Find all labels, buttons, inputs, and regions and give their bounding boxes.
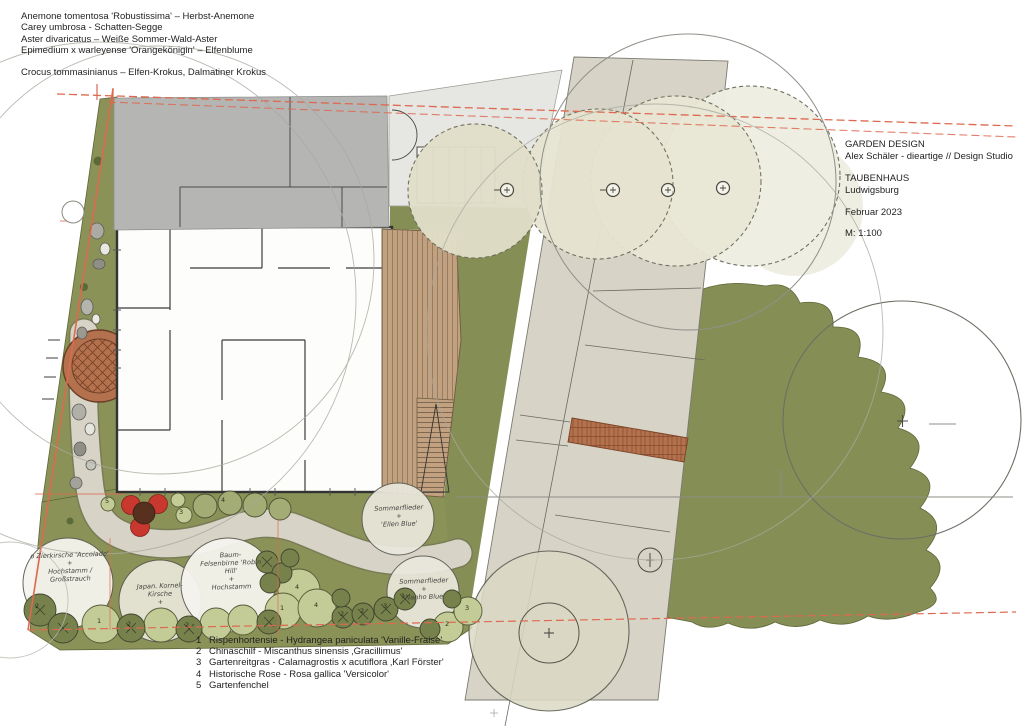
legend-item: 1Rispenhortensie - Hydrangea paniculata …	[196, 635, 444, 646]
house-floorplan	[113, 227, 396, 496]
studio-name: GARDEN DESIGN	[845, 139, 1013, 151]
plan-scale: M: 1:100	[845, 228, 1013, 240]
legend-num: 3	[196, 657, 209, 668]
plant-number-marker: 2	[185, 621, 189, 629]
dimension-ticks	[42, 340, 60, 399]
note-line-crocus: Crocus tommasinianus – Elfen-Krokus, Dal…	[21, 67, 266, 78]
legend-text: Chinaschilf - Miscanthus sinensis ‚Graci…	[209, 646, 402, 657]
lawn-right-hedge	[666, 283, 940, 628]
plant-number-marker: 4	[295, 583, 299, 591]
legend-num: 5	[196, 680, 209, 691]
plan-date: Februar 2023	[845, 207, 1013, 219]
legend-num: 2	[196, 646, 209, 657]
tree-bottom-large	[469, 551, 629, 711]
small-tree-circle	[62, 201, 84, 223]
site-plan-drawing	[0, 0, 1024, 726]
note-line: Epimedium x warleyense 'Orangekönigin' –…	[21, 45, 266, 56]
house-roof	[114, 96, 389, 230]
plant-notes: Anemone tomentosa 'Robustissima' – Herbs…	[21, 11, 266, 78]
plant-number-marker: 3	[383, 602, 387, 610]
plant-number-marker: 2	[340, 610, 344, 618]
plant-legend: 1Rispenhortensie - Hydrangea paniculata …	[196, 635, 444, 691]
corner-mark	[490, 709, 498, 717]
plant-number-marker: 2	[360, 607, 364, 615]
project-city: Ludwigsburg	[845, 185, 1013, 197]
tree-label-zierkirsche: o Zierkirsche 'Accolade'+ Hochstamm /Gro…	[21, 549, 118, 584]
plant-number-marker: 1	[97, 617, 101, 625]
legend-num: 4	[196, 669, 209, 680]
note-line: Aster divaricatus – Weiße Sommer-Wald-As…	[21, 34, 266, 45]
legend-text: Historische Rose - Rosa gallica 'Versico…	[209, 669, 389, 680]
plant-number-marker: 2	[35, 602, 39, 610]
plant-number-marker: 3	[465, 604, 469, 612]
legend-text: Gartenreitgras - Calamagrostis x acutifl…	[209, 657, 444, 668]
project-name: TAUBENHAUS	[845, 173, 1013, 185]
note-line: Carey umbrosa - Schatten-Segge	[21, 22, 266, 33]
plant-number-marker: 4	[314, 601, 318, 609]
studio-byline: Alex Schäler - dieartige // Design Studi…	[845, 151, 1013, 163]
title-block: GARDEN DESIGN Alex Schäler - dieartige /…	[845, 139, 1013, 239]
legend-text: Rispenhortensie - Hydrangea paniculata '…	[209, 635, 442, 646]
legend-item: 3Gartenreitgras - Calamagrostis x acutif…	[196, 657, 444, 668]
garden-plan-page: Anemone tomentosa 'Robustissima' – Herbs…	[0, 0, 1024, 726]
legend-item: 2Chinaschilf - Miscanthus sinensis ‚Grac…	[196, 646, 444, 657]
note-line: Anemone tomentosa 'Robustissima' – Herbs…	[21, 11, 266, 22]
legend-item: 4Historische Rose - Rosa gallica 'Versic…	[196, 669, 444, 680]
legend-num: 1	[196, 635, 209, 646]
plant-number-marker: 1	[401, 592, 405, 600]
plant-number-marker: 1	[280, 604, 284, 612]
tree-label-felsenbirne: Baum-Felsenbirne 'Robin Hill'+ Hochstamm	[182, 549, 279, 592]
plant-number-marker: 4	[221, 496, 225, 504]
plant-number-marker: 3	[179, 508, 183, 516]
plant-number-marker: 5	[105, 497, 109, 505]
plant-number-marker: 2	[127, 620, 131, 628]
legend-item: 5Gartenfenchel	[196, 680, 444, 691]
legend-text: Gartenfenchel	[209, 680, 269, 691]
shrub-label-sommerflieder-1: Sommerflieder+ 'Ellen Blue'	[362, 503, 437, 530]
shrub-label-sommerflieder-2: Sommerflieder+ 'Nanho Blue'	[386, 576, 463, 603]
plant-number-marker: 2	[445, 620, 449, 628]
